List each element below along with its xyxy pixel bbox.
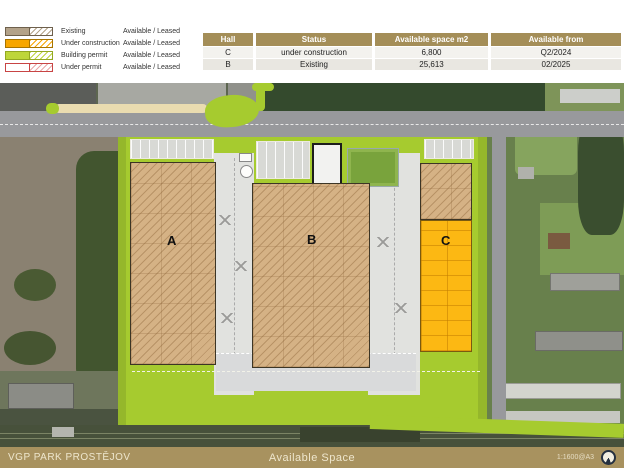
cell-hall: C [203,47,253,58]
page-title: Available Space [0,452,624,464]
hall-c-under-construction-part: C [420,220,472,352]
under-permit-swatch [5,63,53,72]
aerial-truck-yard [560,89,620,103]
cell-status: Existing [256,59,372,70]
hall-b-label: B [307,232,316,247]
legend-label: Under permit [61,64,123,71]
aerial-shed [52,427,74,437]
legend-label: Building permit [61,52,123,59]
dock-marking [234,261,248,271]
dock-marking [220,313,234,323]
parking-row [256,141,310,179]
legend-row-under-permit: Under permit Available / Leased [5,61,180,73]
park-edge-planting [118,129,126,425]
green-island-cap [46,103,59,114]
existing-swatch [5,27,53,36]
cell-space: 6,800 [375,47,488,58]
dock-marking [394,303,408,313]
table-header-row: Hall Status Available space m2 Available… [203,33,624,46]
compass-icon [601,450,616,465]
aerial-building [8,383,74,409]
gatehouse-building [312,143,342,187]
footpath-dashed-line [132,371,480,372]
legend: Existing Available / Leased Under constr… [5,25,180,73]
column-header-available-from: Available from [491,33,621,46]
legend-availability: Available / Leased [123,40,180,47]
legend-row-existing: Existing Available / Leased [5,25,180,37]
aerial-warehouse [550,273,620,291]
legend-availability: Available / Leased [123,64,180,71]
hall-a-building: A [130,162,216,365]
aerial-tree-line [76,151,118,387]
sidewalk-strip [55,104,207,113]
footer-bar: VGP PARK PROSTĚJOV Available Space 1:160… [0,447,624,468]
column-header-hall: Hall [203,33,253,46]
dock-marking [376,237,390,247]
legend-label: Existing [61,28,123,35]
building-permit-swatch [5,51,53,60]
aerial-warehouse-long [495,383,621,399]
table-row: B Existing 25,613 02/2025 [203,59,624,70]
under-construction-swatch [5,39,53,48]
cell-from: 02/2025 [491,59,621,70]
parking-row [130,139,214,159]
side-road [492,127,506,425]
scale-label: 1:1600@A3 [557,454,594,461]
hall-c-building: C [420,163,472,352]
cell-status: under construction [256,47,372,58]
aerial-tree-clump [4,331,56,365]
site-plan-map: A B C [0,83,624,447]
hall-c-label: C [441,233,450,248]
cell-space: 25,613 [375,59,488,70]
availability-table: Hall Status Available space m2 Available… [203,33,624,71]
aerial-house [518,167,534,179]
legend-label: Under construction [61,40,123,47]
legend-row-building-permit: Building permit Available / Leased [5,49,180,61]
retention-basin [348,149,398,186]
cell-from: Q2/2024 [491,47,621,58]
legend-availability: Available / Leased [123,52,180,59]
aerial-shadow [0,409,118,425]
hall-c-existing-part [420,163,472,220]
legend-availability: Available / Leased [123,28,180,35]
table-row: C under construction 6,800 Q2/2024 [203,47,624,58]
column-header-status: Status [256,33,372,46]
aerial-tree-clump [14,269,56,301]
dock-marking [218,215,232,225]
hall-b-building: B [252,183,370,368]
road-centerline [0,124,624,125]
column-header-available-space: Available space m2 [375,33,488,46]
park-edge-planting [478,129,487,425]
utility-tank [240,165,253,178]
green-island-hook [252,83,274,91]
utility-box [239,153,252,162]
aerial-barn [548,233,570,249]
page: Existing Available / Leased Under constr… [0,0,624,468]
hall-a-label: A [167,233,176,248]
cell-hall: B [203,59,253,70]
legend-row-under-construction: Under construction Available / Leased [5,37,180,49]
parking-row [424,139,474,159]
main-road [0,111,624,137]
aerial-warehouse [535,331,623,351]
